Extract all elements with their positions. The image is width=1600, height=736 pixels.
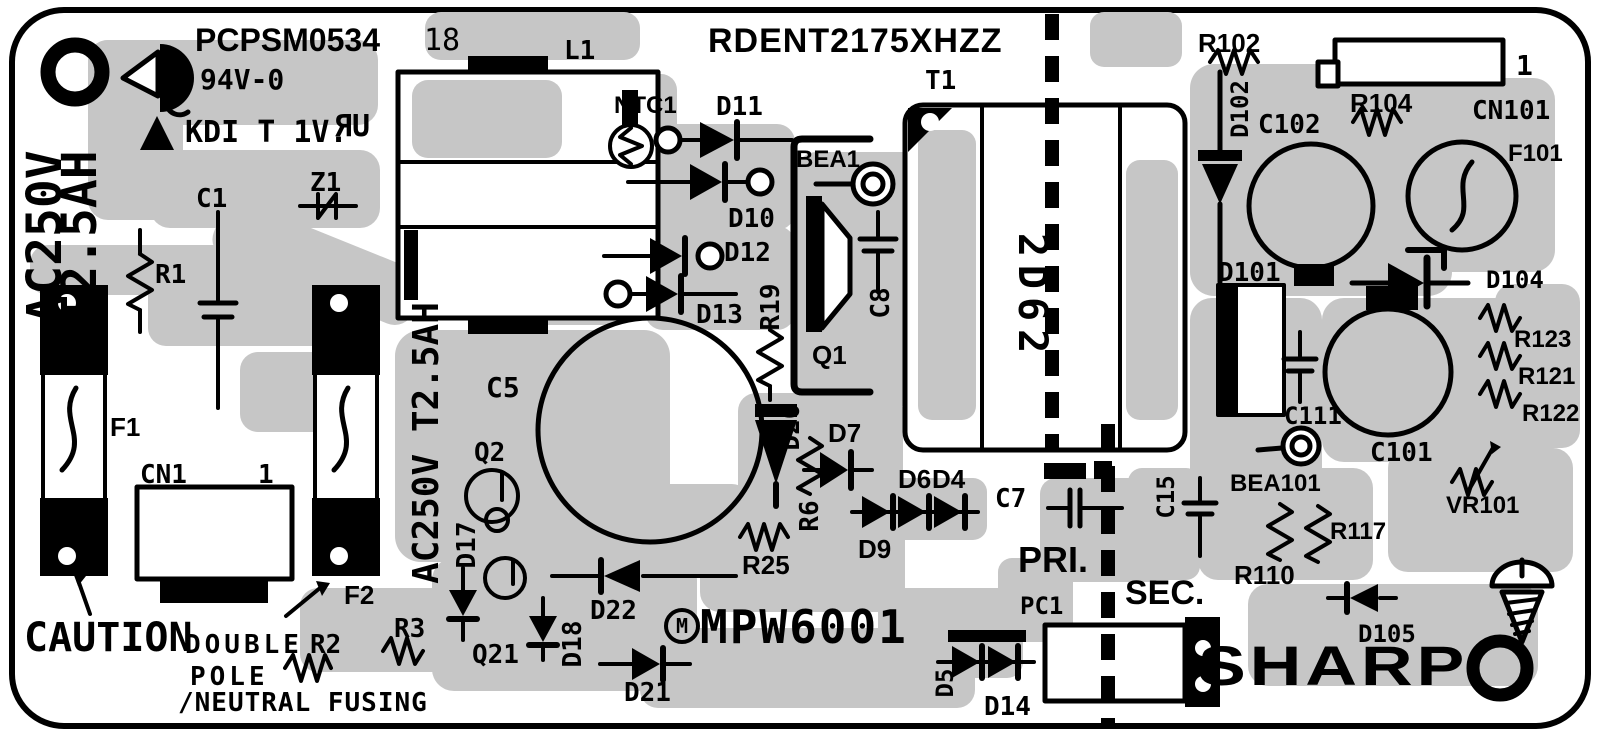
label-ic-part: MPW6001: [700, 604, 908, 650]
label-c5: C5: [486, 374, 520, 402]
ic-maker-logo: M: [664, 608, 700, 644]
label-q2: Q2: [474, 440, 505, 466]
capacitor-c102-tab: [1294, 264, 1334, 286]
label-revision: 18: [424, 26, 460, 56]
label-d17: D17: [454, 522, 480, 569]
label-d5: D5: [933, 669, 957, 698]
label-fusing-note-1: DOUBLE: [185, 632, 303, 658]
label-d13: D13: [696, 302, 743, 328]
label-cn101: CN101: [1472, 98, 1550, 124]
label-r3: R3: [394, 616, 425, 642]
connector-cn101-body: [1335, 40, 1503, 84]
label-d22: D22: [590, 598, 637, 624]
label-r102: R102: [1198, 30, 1260, 56]
label-d7: D7: [828, 420, 861, 446]
label-r104: R104: [1350, 90, 1412, 116]
connector-cn101-step: [1318, 62, 1338, 86]
label-vr101: VR101: [1446, 494, 1519, 518]
label-c15: C15: [1154, 475, 1178, 518]
label-q1: Q1: [812, 342, 847, 368]
label-f101: F101: [1508, 142, 1563, 166]
label-marking: KDI T 1V.: [185, 118, 348, 148]
label-d101: D101: [1218, 260, 1281, 286]
label-c102: C102: [1258, 112, 1321, 138]
label-t1: T1: [925, 68, 956, 94]
label-d11: D11: [716, 94, 763, 120]
label-ntc1: NTC1: [614, 94, 677, 118]
label-bea101: BEA101: [1230, 472, 1321, 496]
label-caution: CAUTION: [24, 618, 193, 658]
label-transformer-marking: 2D62: [1012, 233, 1052, 361]
label-cn101-pin1: 1: [1516, 52, 1533, 80]
brand-logo: SHARP: [1198, 638, 1468, 694]
label-f2: F2: [344, 582, 374, 608]
ic-maker-letter: M: [676, 614, 688, 638]
connector-cn1-body: [137, 487, 292, 579]
label-r25: R25: [742, 552, 790, 578]
label-l1: L1: [564, 38, 595, 64]
label-cn1: CN1: [140, 462, 187, 488]
label-d20: D20: [778, 404, 804, 451]
label-pc1: PC1: [1020, 594, 1063, 618]
label-r121: R121: [1518, 365, 1575, 389]
label-d21: D21: [624, 680, 671, 706]
label-q21: Q21: [472, 642, 519, 668]
thermistor-ntc1-symbol: [610, 125, 652, 167]
label-fuse-rating-2: T2.5AH: [56, 150, 104, 323]
label-r1: R1: [155, 262, 186, 288]
label-bea1: BEA1: [796, 148, 860, 172]
label-cn1-pin1: 1: [258, 462, 274, 488]
label-c1: C1: [196, 186, 227, 212]
ul-mark-icon: ЯU: [334, 112, 370, 142]
label-c101: C101: [1370, 440, 1433, 466]
diode-d101-band: [1218, 285, 1238, 415]
label-primary-side: PRI.: [1018, 542, 1088, 578]
label-c111: C111: [1284, 404, 1342, 428]
label-d14: D14: [984, 694, 1031, 720]
label-model: RDENT2175XHZZ: [708, 24, 1003, 58]
label-r6: R6: [797, 500, 823, 531]
pcb-silkscreen-diagram: PCPSM0534 18 94V-0 KDI T 1V. ЯU RDENT217…: [0, 0, 1600, 736]
label-d12: D12: [724, 240, 771, 266]
label-d4: D4: [932, 466, 965, 492]
label-d104: D104: [1486, 268, 1544, 292]
label-r19: R19: [758, 284, 784, 331]
label-f1: F1: [110, 414, 140, 440]
label-c7: C7: [995, 486, 1026, 512]
label-d10: D10: [728, 206, 775, 232]
label-r122: R122: [1522, 402, 1579, 426]
label-d18: D18: [560, 621, 586, 668]
connector-cn1-tab: [160, 579, 268, 603]
label-c8: C8: [868, 287, 894, 318]
label-z1: Z1: [310, 170, 341, 196]
label-r110: R110: [1234, 562, 1295, 588]
label-d9: D9: [858, 536, 891, 562]
label-r2: R2: [310, 632, 341, 658]
label-fuse-rating-inline: AC250V T2.5AH: [409, 302, 445, 584]
label-fusing-note-3: /NEUTRAL FUSING: [178, 690, 428, 716]
label-r117: R117: [1330, 520, 1386, 544]
label-flammability: 94V-0: [200, 66, 284, 94]
label-part-number: PCPSM0534: [195, 24, 380, 56]
label-fusing-note-2: POLE: [190, 664, 269, 690]
label-secondary-side: SEC.: [1125, 576, 1204, 610]
label-d102: D102: [1228, 80, 1252, 138]
label-r123: R123: [1514, 328, 1571, 352]
label-d6: D6: [898, 466, 931, 492]
